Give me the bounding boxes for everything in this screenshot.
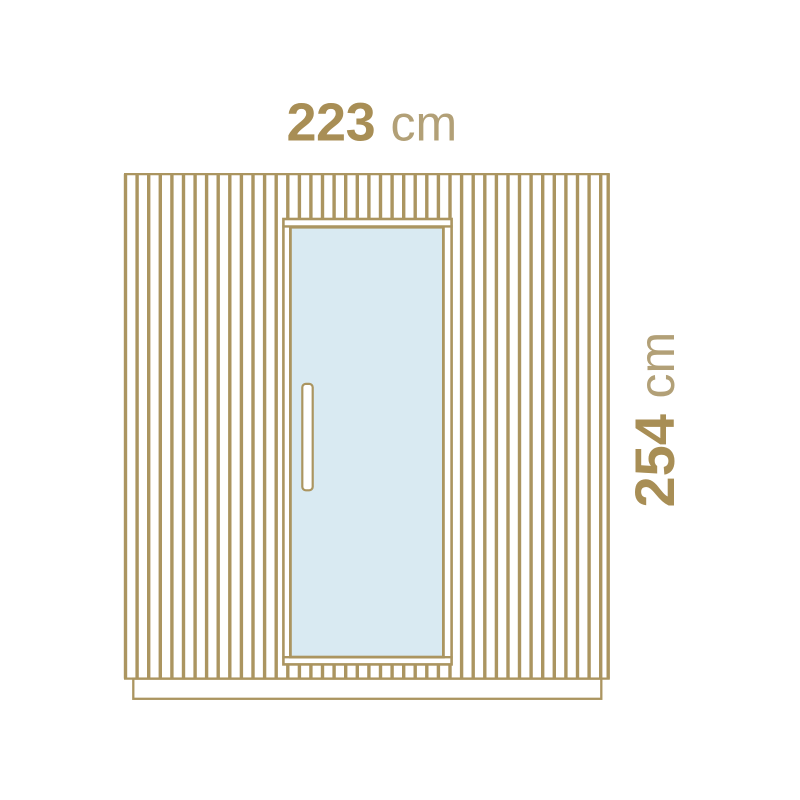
svg-text:223: 223 [287,93,376,153]
svg-text:cm: cm [629,332,685,399]
svg-text:cm: cm [391,96,458,152]
svg-text:254: 254 [623,414,686,507]
